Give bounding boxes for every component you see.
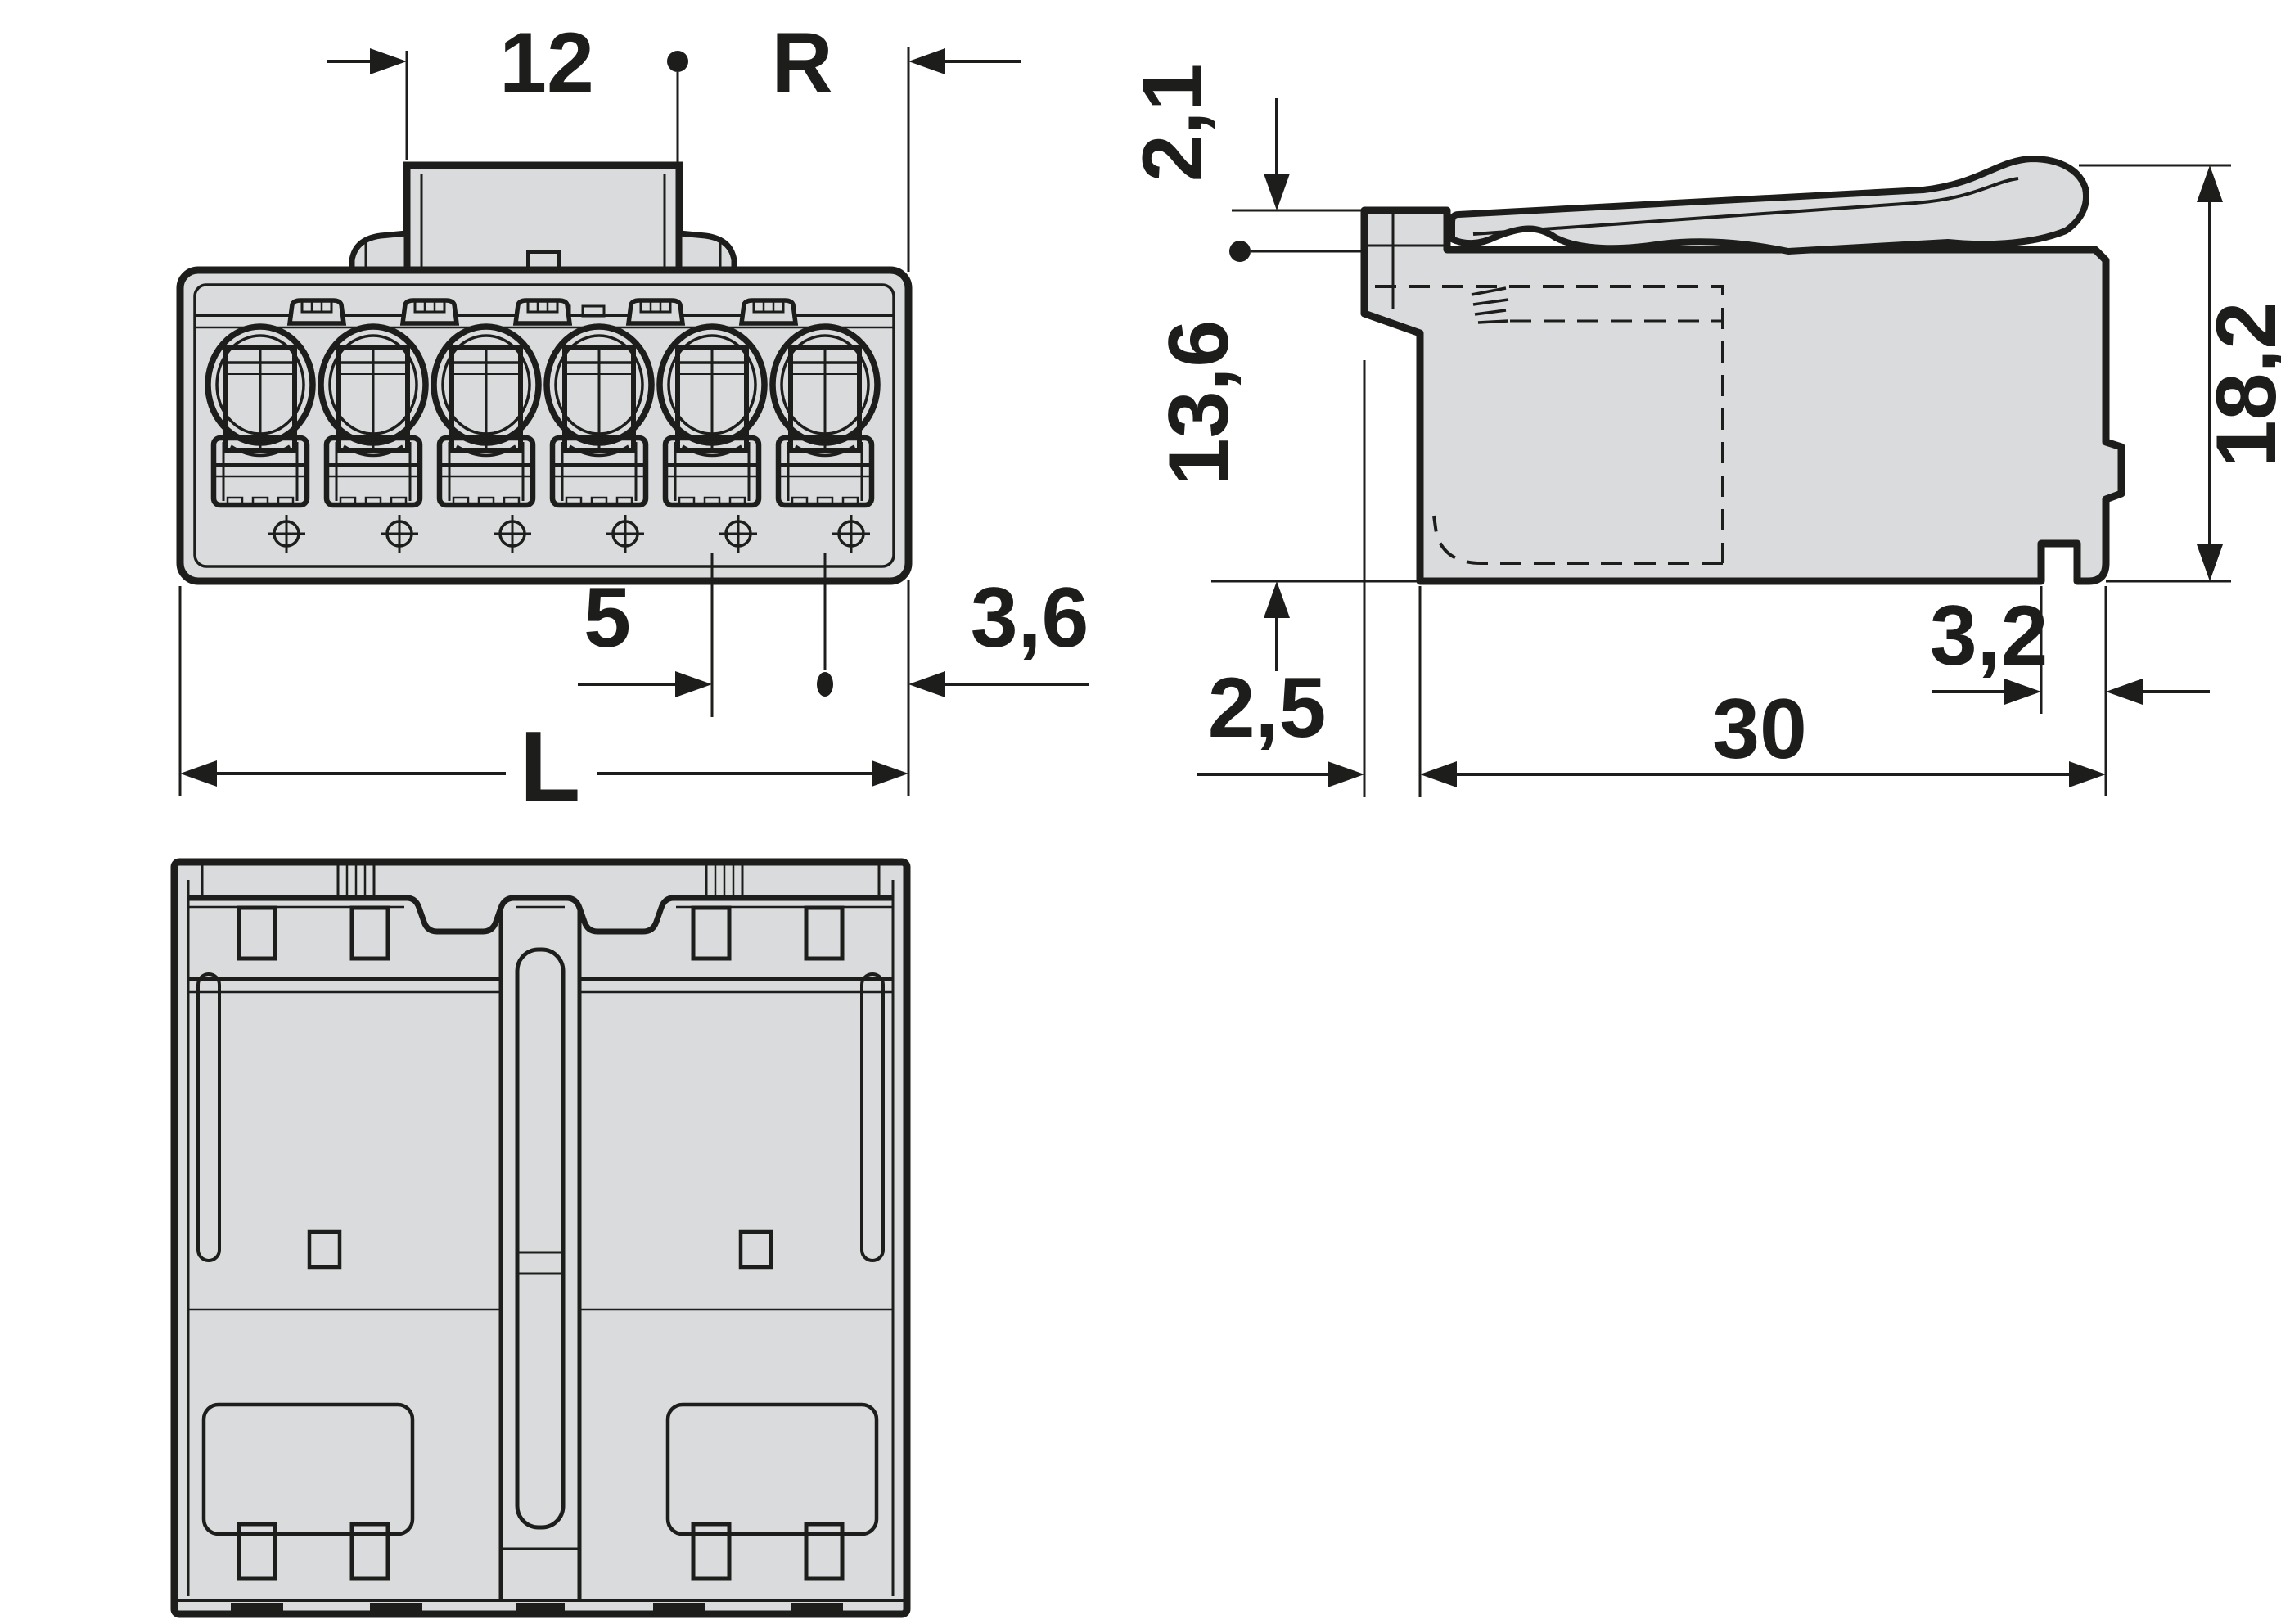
side-housing xyxy=(1364,210,2121,581)
dim-136-label: 13,6 xyxy=(1152,320,1246,485)
bottom-view xyxy=(174,862,907,1614)
bottom-housing xyxy=(174,862,907,1614)
dim-32-label: 3,2 xyxy=(1930,589,2049,683)
dim-5-label: 5 xyxy=(584,571,631,665)
foot xyxy=(231,1603,283,1614)
side-view: 2,1 13,6 2,5 30 xyxy=(1125,64,2281,797)
front-left-shoulder xyxy=(352,233,407,272)
dim-30-label: 30 xyxy=(1712,682,1807,777)
dim-foot: 3,2 xyxy=(1930,586,2210,714)
dim-36-label: 3,6 xyxy=(971,571,1089,665)
dim-total-length: L xyxy=(180,586,908,822)
dim-edge-offset: 3,6 xyxy=(908,571,1089,697)
dim-21-label: 2,1 xyxy=(1125,64,1220,183)
dim-L-label: L xyxy=(520,710,581,822)
front-lever-block xyxy=(407,165,679,272)
front-right-shoulder xyxy=(679,233,734,272)
dim-25-label: 2,5 xyxy=(1208,661,1327,756)
foot xyxy=(370,1603,422,1614)
foot xyxy=(516,1603,565,1614)
dim-182-label: 18,2 xyxy=(2199,302,2281,467)
drawing-stage: 12 R 5 3,6 xyxy=(0,0,2281,1624)
front-view: 12 R 5 3,6 xyxy=(180,16,1089,822)
foot xyxy=(791,1603,843,1614)
dim-12-label: 12 xyxy=(499,16,594,111)
technical-drawing: 12 R 5 3,6 xyxy=(0,0,2281,1624)
dim-front-depth: 13,6 xyxy=(1152,320,1420,671)
foot xyxy=(653,1603,705,1614)
dim-lever-offset: 2,1 xyxy=(1125,64,1364,262)
side-lever xyxy=(1452,159,2086,251)
dim-R-label: R xyxy=(771,16,832,111)
